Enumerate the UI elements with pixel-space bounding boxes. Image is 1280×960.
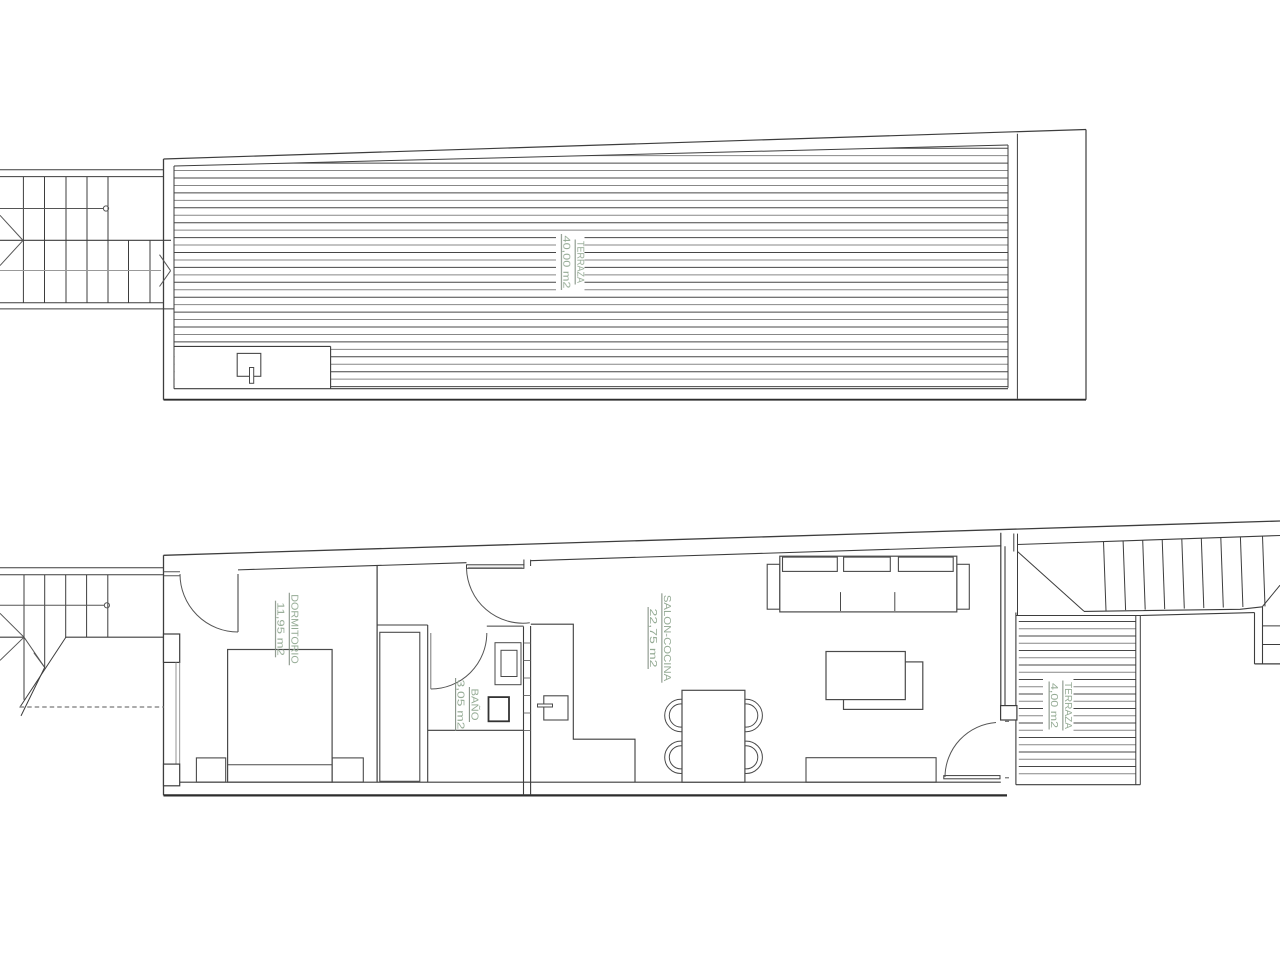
svg-text:TERRAZA: TERRAZA bbox=[574, 241, 585, 283]
svg-text:BAÑO: BAÑO bbox=[468, 689, 480, 721]
svg-text:4,00 m2: 4,00 m2 bbox=[1048, 683, 1059, 729]
svg-text:11,95 m2: 11,95 m2 bbox=[275, 602, 286, 656]
svg-text:DORMITORIO: DORMITORIO bbox=[288, 594, 299, 664]
svg-text:TERRAZA: TERRAZA bbox=[1062, 682, 1073, 729]
svg-text:SALON-COCINA: SALON-COCINA bbox=[661, 595, 672, 682]
svg-text:3,05 m2: 3,05 m2 bbox=[455, 680, 466, 731]
svg-text:22,75 m2: 22,75 m2 bbox=[647, 609, 658, 669]
svg-text:40,00 m2: 40,00 m2 bbox=[560, 236, 571, 290]
